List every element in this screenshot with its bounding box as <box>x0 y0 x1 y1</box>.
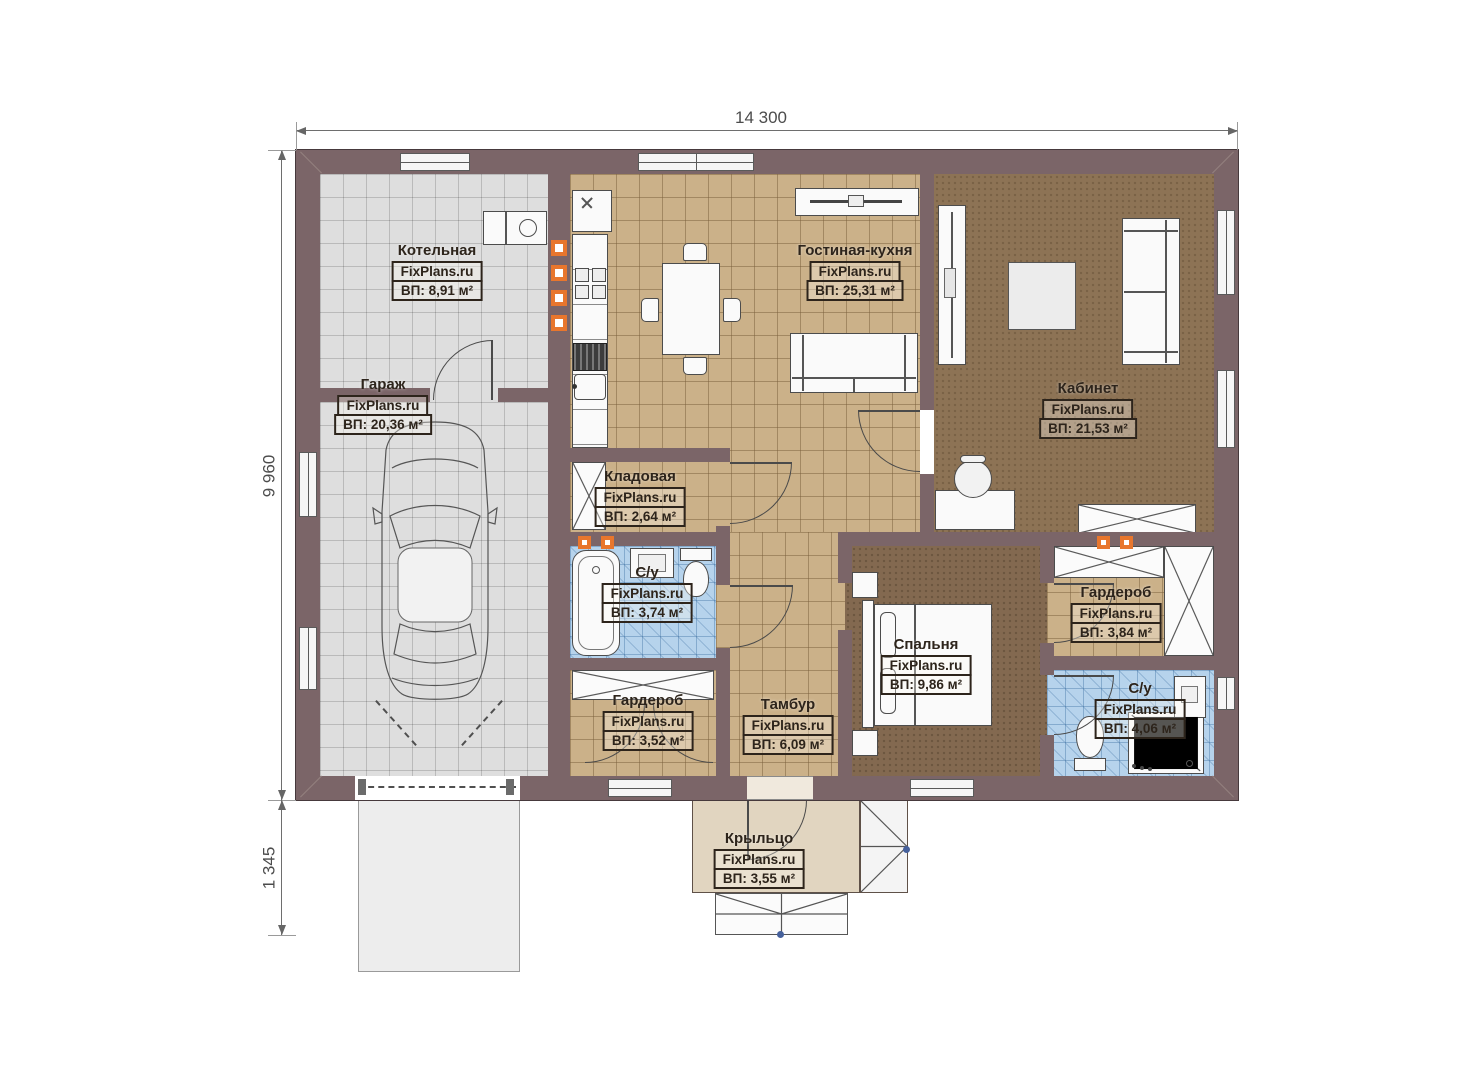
window-bedroom <box>910 779 974 797</box>
dining-chair <box>683 357 707 375</box>
wall-bath1-wardrobe1 <box>570 658 716 670</box>
room-label-wardrobe1: Гардероб FixPlans.ru ВП: 3,52 м² <box>603 692 694 751</box>
dim-arrow <box>278 925 286 935</box>
bed-headboard <box>862 600 874 728</box>
room-area: ВП: 21,53 м² <box>1039 418 1137 439</box>
dim-porch-depth: 1 345 <box>259 847 279 890</box>
car-top-view <box>372 416 498 708</box>
dish-rack <box>573 343 607 371</box>
room-label-porch: Крыльцо FixPlans.ru ВП: 3,55 м² <box>714 830 805 889</box>
porch-steps <box>715 893 848 935</box>
wall-bedroom-left <box>838 630 852 776</box>
shower-head-dots <box>1148 767 1152 771</box>
office-wall-unit-shelf <box>944 268 956 298</box>
vent-marker <box>551 290 567 306</box>
room-title: Гардероб <box>603 692 694 709</box>
wall-storage-top <box>570 448 730 462</box>
watermark: FixPlans.ru <box>1043 399 1134 420</box>
kitchen-faucet <box>572 384 577 389</box>
bath2-door-leaf <box>1054 675 1114 677</box>
steps-marker-dot <box>777 931 784 938</box>
watermark: FixPlans.ru <box>595 487 686 508</box>
dim-arrow <box>278 790 286 800</box>
room-label-bedroom: Спальня FixPlans.ru ВП: 9,86 м² <box>881 636 972 695</box>
stove-burner <box>575 268 589 282</box>
bath1-door-leaf <box>730 585 793 587</box>
room-label-office: Кабинет FixPlans.ru ВП: 21,53 м² <box>1039 380 1137 439</box>
watermark: FixPlans.ru <box>602 583 693 604</box>
room-label-garage: Гараж FixPlans.ru ВП: 20,36 м² <box>334 376 432 435</box>
room-area: ВП: 3,84 м² <box>1071 622 1161 643</box>
dim-ext-line <box>268 935 296 936</box>
office-chair <box>954 460 992 498</box>
office-chair-backrest <box>960 455 986 463</box>
room-label-storage: Кладовая FixPlans.ru ВП: 2,64 м² <box>595 468 686 527</box>
porch-ramp <box>860 800 908 893</box>
wall-storage-right <box>716 526 730 532</box>
window-garage-1 <box>299 452 317 517</box>
stove-burner <box>575 285 589 299</box>
watermark: FixPlans.ru <box>743 715 834 736</box>
room-area: ВП: 20,36 м² <box>334 414 432 435</box>
garage-gate-line <box>358 786 516 788</box>
vent-marker <box>1120 536 1133 549</box>
window-bath2 <box>1217 677 1235 710</box>
garage-apron <box>358 800 520 972</box>
window-office-1 <box>1217 210 1235 295</box>
bath2-toilet-tank <box>1074 758 1106 771</box>
washing-machine-door <box>519 219 537 237</box>
vent-marker <box>551 240 567 256</box>
kitchen-sink <box>574 374 606 400</box>
dining-chair <box>641 298 659 322</box>
room-title: С/у <box>1095 680 1186 697</box>
dim-arrow <box>1228 127 1238 135</box>
watermark: FixPlans.ru <box>1095 699 1186 720</box>
dim-arrow <box>278 150 286 160</box>
wall-living-office <box>920 174 934 410</box>
nightstand <box>852 730 878 756</box>
tv-living-center <box>848 195 864 207</box>
dim-line-porch <box>281 800 282 935</box>
wardrobe2-closet-top <box>1054 546 1164 578</box>
vent-marker <box>1097 536 1110 549</box>
room-label-bath2: С/у FixPlans.ru ВП: 4,06 м² <box>1095 680 1186 739</box>
vent-marker <box>578 536 591 549</box>
dining-table <box>662 263 720 355</box>
wall-tambour-left <box>716 648 730 776</box>
room-area: ВП: 25,31 м² <box>806 280 904 301</box>
vent-marker <box>551 265 567 281</box>
floor-plan: Котельная FixPlans.ru ВП: 8,91 м² Гараж … <box>0 0 1473 1080</box>
room-area: ВП: 6,09 м² <box>743 734 833 755</box>
wall-bedroom-right <box>1040 546 1054 583</box>
watermark: FixPlans.ru <box>881 655 972 676</box>
watermark: FixPlans.ru <box>1071 603 1162 624</box>
garage-gate-jamb <box>506 779 514 795</box>
garage-gate-jamb <box>358 779 366 795</box>
dining-chair <box>683 243 707 261</box>
bath1-toilet-tank <box>680 548 712 561</box>
office-sofa-armrest <box>1124 230 1178 232</box>
shower-head-dots <box>1140 766 1144 770</box>
watermark: FixPlans.ru <box>603 711 694 732</box>
room-label-living: Гостиная-кухня FixPlans.ru ВП: 25,31 м² <box>798 242 913 301</box>
room-title: Гараж <box>334 376 432 393</box>
room-area: ВП: 8,91 м² <box>392 280 482 301</box>
wall-tambour-left <box>716 546 730 585</box>
window-office-2 <box>1217 370 1235 448</box>
window-boiler <box>400 153 470 171</box>
room-area: ВП: 4,06 м² <box>1095 718 1185 739</box>
sofa-living-cushion-split <box>853 379 855 392</box>
dim-overall-width: 14 300 <box>735 108 787 128</box>
window-kitchen <box>638 153 754 171</box>
room-title: Гардероб <box>1071 584 1162 601</box>
sofa-living-armrest <box>802 335 804 391</box>
watermark: FixPlans.ru <box>714 849 805 870</box>
dim-overall-depth: 9 960 <box>259 455 279 498</box>
room-area: ВП: 2,64 м² <box>595 506 685 527</box>
office-sofa-cushion-split <box>1124 291 1166 293</box>
garage-gate-opening <box>355 776 520 800</box>
entrance-opening <box>747 776 813 800</box>
room-area: ВП: 3,52 м² <box>603 730 693 751</box>
bathtub-drain <box>592 566 600 574</box>
stove-burner <box>592 285 606 299</box>
window-garage-2 <box>299 627 317 690</box>
dim-arrow <box>278 800 286 810</box>
office-closet <box>1078 504 1196 534</box>
dim-arrow <box>296 127 306 135</box>
watermark: FixPlans.ru <box>392 261 483 282</box>
room-label-tambour: Тамбур FixPlans.ru ВП: 6,09 м² <box>743 696 834 755</box>
stove-burner <box>592 268 606 282</box>
sofa-living-armrest <box>904 335 906 391</box>
room-label-wardrobe2: Гардероб FixPlans.ru ВП: 3,84 м² <box>1071 584 1162 643</box>
ramp-marker-dot <box>903 846 910 853</box>
storage-door-leaf <box>730 462 792 464</box>
wall-mid-left <box>570 532 730 546</box>
wall-bedroom-right <box>1040 643 1054 675</box>
dim-line-left <box>281 150 282 800</box>
room-title: С/у <box>602 564 693 581</box>
wall-bedroom-left <box>838 546 852 583</box>
room-title: Котельная <box>392 242 483 259</box>
office-door-leaf <box>858 410 920 412</box>
wall-boiler-garage <box>498 388 548 402</box>
vent-marker <box>551 315 567 331</box>
wardrobe2-closet-right <box>1164 546 1214 656</box>
room-title: Тамбур <box>743 696 834 713</box>
wall-mid-right <box>838 532 1214 546</box>
room-label-bath1: С/у FixPlans.ru ВП: 3,74 м² <box>602 564 693 623</box>
room-title: Кабинет <box>1039 380 1137 397</box>
room-title: Кладовая <box>595 468 686 485</box>
boiler-door-leaf <box>491 340 493 400</box>
room-area: ВП: 9,86 м² <box>881 674 971 695</box>
boiler-unit-divider <box>505 212 507 244</box>
fridge <box>572 190 612 232</box>
nightstand <box>852 572 878 598</box>
office-coffee-table <box>1008 262 1076 330</box>
watermark: FixPlans.ru <box>810 261 901 282</box>
boiler-washing-machine <box>483 211 547 245</box>
kitchen-counter <box>572 234 608 448</box>
watermark: FixPlans.ru <box>338 395 429 416</box>
room-label-boiler: Котельная FixPlans.ru ВП: 8,91 м² <box>392 242 483 301</box>
room-title: Спальня <box>881 636 972 653</box>
dim-line-top <box>296 130 1238 131</box>
room-area: ВП: 3,55 м² <box>714 868 804 889</box>
office-sofa-armrest <box>1124 351 1178 353</box>
vent-marker <box>601 536 614 549</box>
wall-wardrobe2-bath2 <box>1054 656 1214 670</box>
room-area: ВП: 3,74 м² <box>602 602 692 623</box>
shower-drain <box>1186 760 1193 767</box>
room-title: Крыльцо <box>714 830 805 847</box>
room-title: Гостиная-кухня <box>798 242 913 259</box>
dining-chair <box>723 298 741 322</box>
window-wardrobe1 <box>608 779 672 797</box>
wall-bedroom-right <box>1040 735 1054 776</box>
shower-head-dots <box>1132 764 1136 768</box>
wall-living-office <box>920 474 934 532</box>
